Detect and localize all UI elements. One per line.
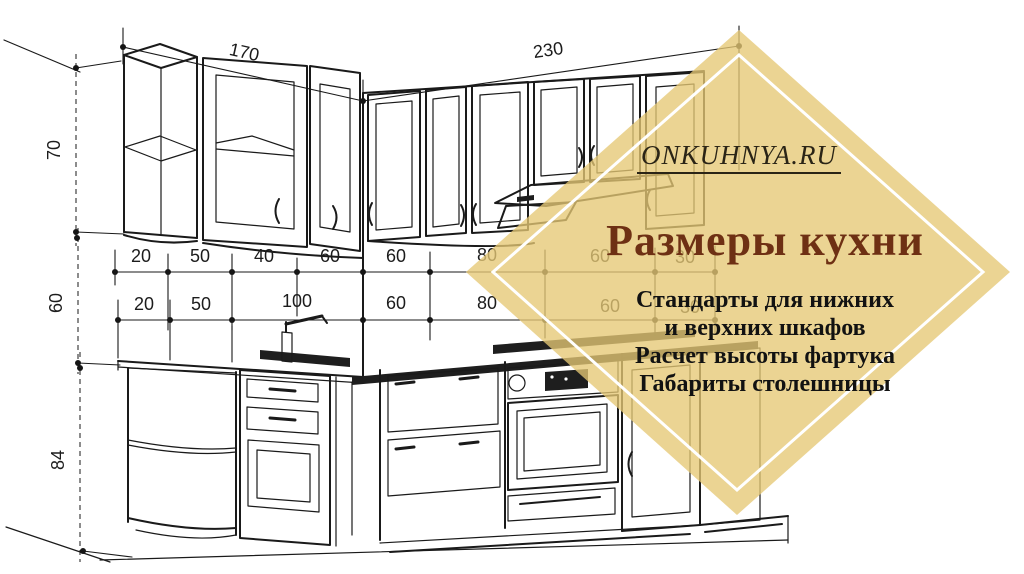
kitchen-dimensions-poster: 170 230 70 60 84 20 — [0, 0, 1024, 574]
diamond-fill — [466, 30, 1010, 515]
watermark-diamond — [0, 0, 1024, 574]
